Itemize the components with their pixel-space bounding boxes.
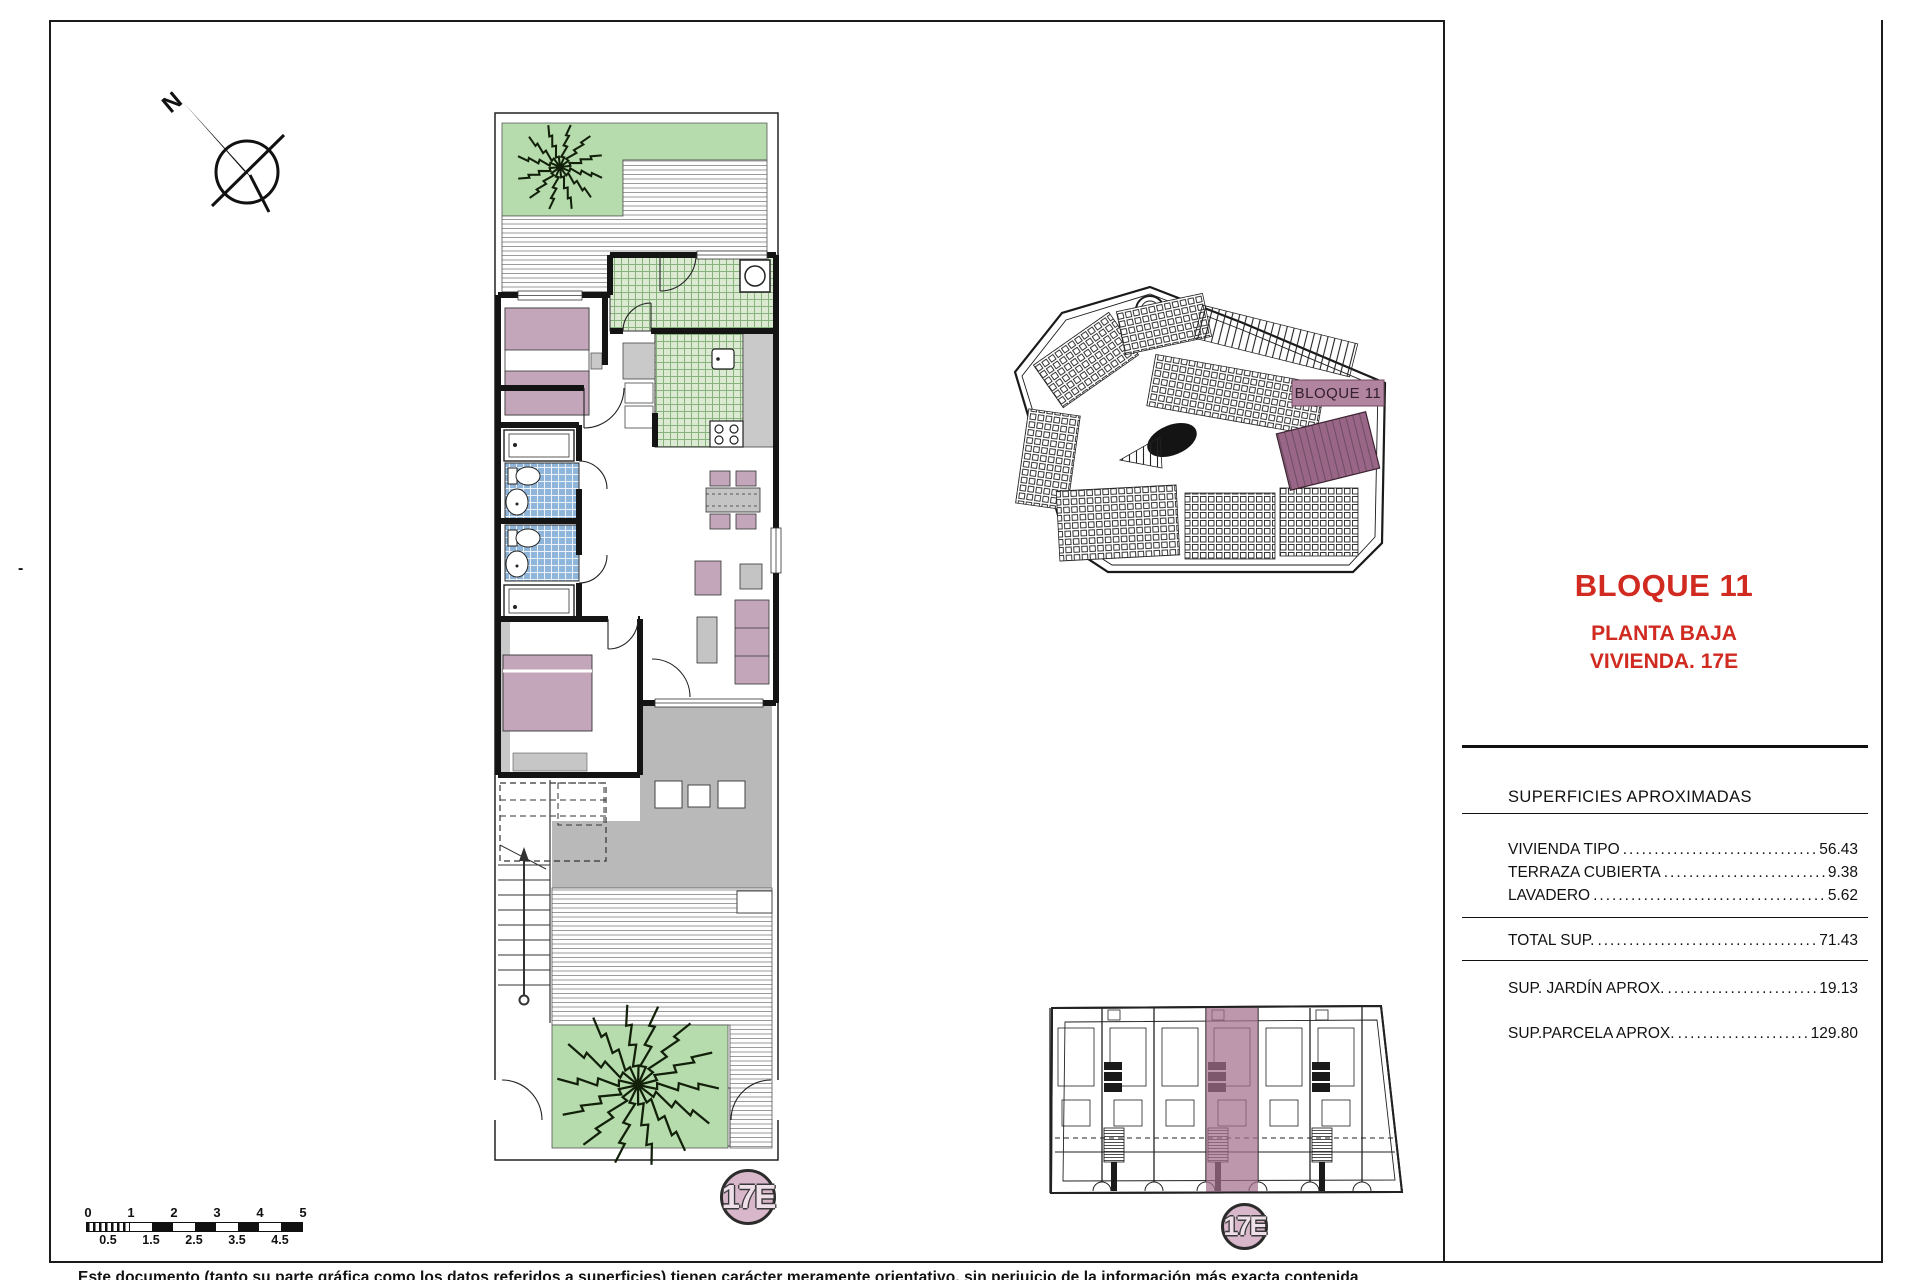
floorplan-drawing (488, 103, 792, 1203)
table-row: VIVIENDA TIPO ..........................… (1462, 838, 1868, 861)
row-leader: ........................................… (1594, 929, 1819, 952)
siteplan-drawing: BLOQUE 11 (1000, 272, 1400, 592)
row-value: 129.80 (1811, 1022, 1858, 1045)
table-row: SUP.PARCELA APROX. .....................… (1462, 1022, 1868, 1045)
disclaimer-text: Este documento (tanto su parte gráfica c… (78, 1269, 1678, 1280)
row-value: 56.43 (1819, 838, 1858, 861)
fold-mark: - (18, 560, 23, 578)
basin-icon (506, 489, 528, 515)
row-label: SUP.PARCELA APROX. (1508, 1022, 1675, 1045)
plan-sheet: N (0, 0, 1920, 1280)
scale-tick: 4 (251, 1205, 269, 1220)
scale-tick: 5 (294, 1205, 312, 1220)
compass-north-label: N (157, 87, 188, 119)
bedroom2-bench (513, 753, 587, 771)
scale-tick: 3 (208, 1205, 226, 1220)
row-leader: ........................................ (1620, 838, 1820, 861)
bathtub-icon (504, 585, 574, 617)
basin-icon (506, 551, 528, 577)
scale-tick: 1 (122, 1205, 140, 1220)
divider (1462, 917, 1868, 918)
toilet-icon (508, 467, 540, 485)
unit-badge-blockplan: 17E (1221, 1203, 1268, 1250)
row-leader: .................................. (1664, 977, 1819, 1000)
subtitle-line1: PLANTA BAJA (1445, 620, 1883, 648)
block-label: BLOQUE 11 (1292, 380, 1384, 406)
row-label: TERRAZA CUBIERTA (1508, 861, 1661, 884)
row-label: SUP. JARDÍN APROX. (1508, 977, 1664, 1000)
row-value: 19.13 (1819, 977, 1858, 1000)
row-leader: .................................... (1661, 861, 1828, 884)
row-leader: ........................................… (1590, 884, 1828, 907)
kitchen-counter (743, 331, 776, 447)
bathtub-icon (504, 430, 574, 461)
row-leader: .............................. (1675, 1022, 1811, 1045)
row-label: TOTAL SUP. (1508, 929, 1594, 952)
scale-bar: 0 1 2 3 4 5 0.5 1.5 2.5 3.5 4.5 (86, 1205, 312, 1249)
row-value: 9.38 (1828, 861, 1858, 884)
row-label: LAVADERO (1508, 884, 1590, 907)
bedroom1-beds (505, 308, 602, 415)
unit-17e-highlight (1206, 1006, 1258, 1192)
page-title: BLOQUE 11 (1445, 568, 1883, 604)
scale-tick: 1.5 (138, 1233, 164, 1247)
table-row: LAVADERO ...............................… (1462, 884, 1868, 907)
bedroom2-bed (503, 655, 592, 731)
scale-tick: 2.5 (181, 1233, 207, 1247)
areas-table: SUPERFICIES APROXIMADAS VIVIENDA TIPO ..… (1462, 745, 1868, 1045)
scale-tick: 3.5 (224, 1233, 250, 1247)
terrace-furniture (655, 781, 745, 808)
row-value: 5.62 (1828, 884, 1858, 907)
areas-heading: SUPERFICIES APROXIMADAS (1508, 788, 1868, 807)
divider (1462, 960, 1868, 961)
scale-bar-strip (86, 1222, 303, 1232)
table-row: SUP. JARDÍN APROX. .....................… (1462, 977, 1868, 1000)
subtitle-line2: VIVIENDA. 17E (1445, 648, 1883, 676)
unit-badge-floorplan: 17E (720, 1169, 776, 1225)
unit-badge-text: 17E (1223, 1211, 1265, 1242)
block-label-text: BLOQUE 11 (1295, 385, 1382, 402)
scale-tick: 4.5 (267, 1233, 293, 1247)
scale-tick: 2 (165, 1205, 183, 1220)
scale-tick: 0 (79, 1205, 97, 1220)
stove-icon (710, 421, 743, 447)
divider (1462, 813, 1868, 814)
table-row: TERRAZA CUBIERTA .......................… (1462, 861, 1868, 884)
row-label: VIVIENDA TIPO (1508, 838, 1620, 861)
row-value: 71.43 (1819, 929, 1858, 952)
page-subtitle: PLANTA BAJA VIVIENDA. 17E (1445, 620, 1883, 675)
table-row-total: TOTAL SUP. .............................… (1462, 929, 1868, 952)
scale-tick: 0.5 (95, 1233, 121, 1247)
unit-badge-text: 17E (722, 1178, 775, 1216)
north-compass-icon: N (150, 60, 320, 300)
toilet-icon (508, 529, 540, 547)
sink-icon (712, 349, 734, 369)
